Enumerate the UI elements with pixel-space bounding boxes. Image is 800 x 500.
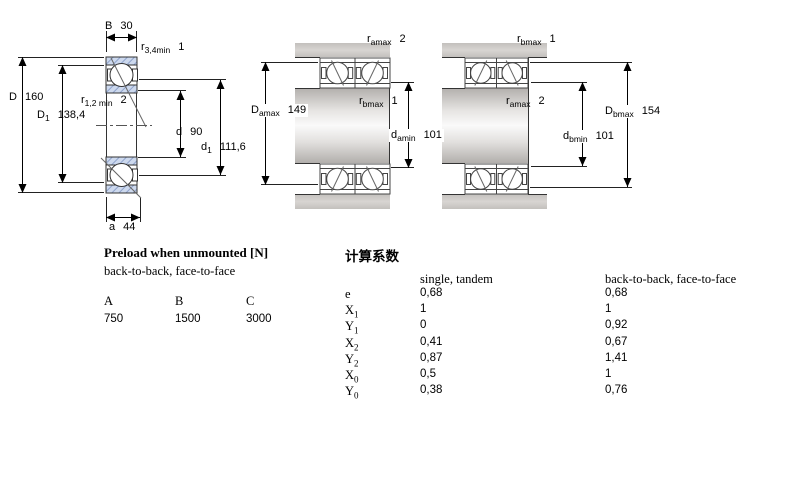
- factors-col2-header: back-to-back, face-to-face: [605, 272, 736, 287]
- dim-value: 154: [642, 105, 660, 117]
- dim-value: 149: [288, 104, 306, 116]
- factor-symbol: X1: [345, 303, 420, 319]
- bearing-datasheet-page: B30 r3,4min1 D160 D1138,4 r1,2 min2 d90 …: [0, 0, 800, 500]
- factor-value-paired: 0,68: [605, 287, 627, 303]
- cage: [322, 174, 327, 185]
- factor-row: e 0,68 0,68: [345, 287, 785, 303]
- bearing-pair-bottom: [465, 164, 528, 194]
- factor-value-single: 0,87: [420, 352, 605, 368]
- bearing-section: [96, 57, 152, 198]
- factor-symbol: X2: [345, 336, 420, 352]
- ball: [110, 64, 133, 87]
- preload-value-row: 750 1500 3000: [104, 313, 374, 325]
- dim-label-a: a44: [109, 221, 135, 233]
- dim-value: 2: [399, 33, 405, 45]
- dim-label-damin: damin101: [389, 129, 444, 142]
- factors-col1-header: single, tandem: [420, 272, 605, 287]
- dim-value: 1: [178, 41, 184, 53]
- factor-value-single: 0,38: [420, 384, 605, 400]
- dim-value: 1: [391, 95, 397, 107]
- factor-symbol: Y2: [345, 352, 420, 368]
- dim-symbol: D: [9, 91, 17, 103]
- dim-symbol: D: [37, 109, 45, 121]
- factor-value-paired: 0,76: [605, 384, 627, 400]
- factor-value-paired: 1,41: [605, 352, 627, 368]
- dim-label-rbmax-top: rbmax1: [517, 33, 556, 46]
- dim-symbol: d: [176, 126, 182, 138]
- factor-value-single: 0,68: [420, 287, 605, 303]
- factors-header-row: single, tandem back-to-back, face-to-fac…: [345, 272, 785, 287]
- dim-value: 1: [549, 33, 555, 45]
- dim-label-d1: d1111,6: [201, 141, 246, 154]
- calculation-factors-table: 计算系数 single, tandem back-to-back, face-t…: [345, 245, 785, 400]
- factor-row: X0 0,5 1: [345, 368, 785, 384]
- factor-value-single: 0,41: [420, 336, 605, 352]
- dim-value: 2: [121, 94, 127, 106]
- factor-row: Y1 0 0,92: [345, 319, 785, 335]
- factor-value-single: 0: [420, 319, 605, 335]
- dim-value: 101: [596, 130, 614, 142]
- cage: [348, 174, 353, 185]
- bearing-pair-top: [465, 58, 528, 88]
- cage: [523, 174, 527, 185]
- preload-value: 1500: [175, 313, 246, 325]
- bearing-pair-top: [320, 58, 390, 88]
- housing-strip: [442, 194, 547, 209]
- factor-symbol: X0: [345, 368, 420, 384]
- dim-value: 160: [25, 91, 43, 103]
- cage: [467, 68, 471, 79]
- factor-symbol: Y1: [345, 319, 420, 335]
- preload-col-header: A: [104, 294, 175, 309]
- housing-strip: [295, 194, 390, 209]
- preload-header-row: A B C: [104, 294, 374, 309]
- cage: [356, 174, 361, 185]
- middle-mounting-drawing: [261, 43, 414, 209]
- preload-table: Preload when unmounted [N] back-to-back,…: [104, 245, 374, 325]
- factor-symbol: e: [345, 287, 420, 303]
- dim-symbol: D: [251, 104, 259, 116]
- dim-value: 90: [190, 126, 202, 138]
- dim-symbol: a: [109, 221, 115, 233]
- preload-subtitle: back-to-back, face-to-face: [104, 264, 374, 279]
- factor-row: X2 0,41 0,67: [345, 336, 785, 352]
- preload-title: Preload when unmounted [N]: [104, 245, 374, 261]
- dim-symbol: B: [105, 20, 112, 32]
- cage: [322, 68, 327, 79]
- dim-value: 2: [538, 95, 544, 107]
- dim-value: 44: [123, 221, 135, 233]
- factor-row: Y2 0,87 1,41: [345, 352, 785, 368]
- dim-label-dbmin: dbmin101: [561, 130, 616, 143]
- dim-label-Damax: Damax149: [249, 104, 308, 117]
- cage: [348, 68, 353, 79]
- dim-label-r12min: r1,2 min2: [81, 94, 127, 107]
- factor-value-paired: 1: [605, 368, 611, 384]
- factor-row: Y0 0,38 0,76: [345, 384, 785, 400]
- dim-value: 30: [120, 20, 132, 32]
- dim-label-r34min: r3,4min1: [141, 41, 184, 54]
- dimension-lines: [583, 62, 628, 187]
- dim-label-rbmax-mid: rbmax1: [359, 95, 398, 108]
- dim-symbol: D: [605, 105, 613, 117]
- factors-title: 计算系数: [345, 245, 785, 265]
- cage: [467, 174, 471, 185]
- dim-label-ramax-top: ramax2: [367, 33, 406, 46]
- cage: [356, 68, 361, 79]
- dim-value: 101: [424, 129, 442, 141]
- dim-label-Dbmax: Dbmax154: [603, 105, 662, 118]
- right-mounting-drawing: [442, 43, 632, 209]
- dim-value: 138,4: [58, 109, 86, 121]
- factor-value-single: 1: [420, 303, 605, 319]
- factor-value-paired: 0,67: [605, 336, 627, 352]
- preload-value: 3000: [246, 313, 317, 325]
- dim-label-D: D160: [9, 91, 43, 103]
- ball: [110, 164, 133, 187]
- factor-value-paired: 0,92: [605, 319, 627, 335]
- dim-label-D1: D1138,4: [37, 109, 85, 122]
- bearing-pair-bottom: [320, 164, 390, 194]
- preload-value: 750: [104, 313, 175, 325]
- dim-label-B: B30: [105, 20, 133, 32]
- extension-lines: [530, 63, 632, 188]
- dim-label-d: d90: [176, 126, 202, 138]
- preload-col-header: B: [175, 294, 246, 309]
- factor-value-paired: 1: [605, 303, 611, 319]
- preload-col-header: C: [246, 294, 317, 309]
- factor-row: X1 1 1: [345, 303, 785, 319]
- cage: [523, 68, 527, 79]
- dim-label-ramax-mid: ramax2: [506, 95, 545, 108]
- factor-symbol: Y0: [345, 384, 420, 400]
- dim-value: 111,6: [220, 141, 246, 153]
- factor-value-single: 0,5: [420, 368, 605, 384]
